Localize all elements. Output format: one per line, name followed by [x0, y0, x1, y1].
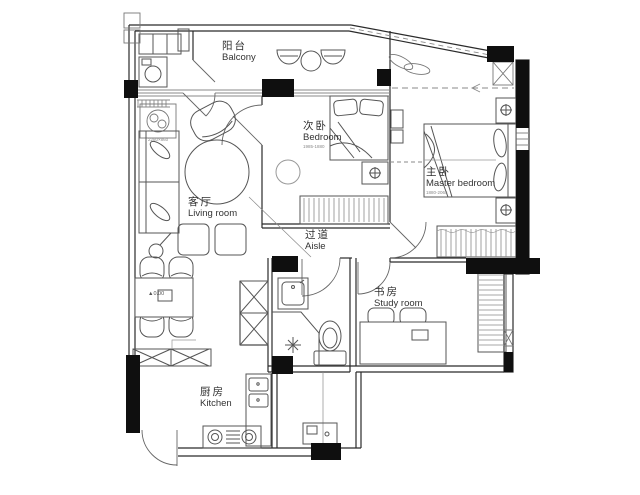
room-label-living-room: 客厅 Living room — [188, 196, 237, 220]
room-name-en: Master bedroom — [426, 178, 495, 189]
column — [272, 356, 293, 374]
master-wardrobe — [437, 226, 516, 257]
column — [272, 256, 298, 272]
room-label-study-room: 书房 Study room — [374, 286, 423, 310]
bedroom-wardrobe — [300, 196, 388, 224]
master-nightstand — [496, 98, 516, 123]
column — [126, 355, 140, 433]
bedroom-rug — [276, 160, 300, 184]
room-name-en: Kitchen — [200, 398, 232, 409]
column — [516, 150, 529, 261]
windows — [135, 28, 529, 443]
room-name-en: Balcony — [222, 52, 256, 63]
column — [487, 46, 514, 62]
bathroom-sink — [278, 278, 308, 309]
column — [124, 80, 138, 98]
shoe-cabinet — [303, 423, 337, 444]
entry-door — [142, 430, 177, 466]
balcony-chair — [277, 50, 301, 64]
column — [504, 352, 513, 372]
tall-cabinet — [240, 281, 268, 345]
room-label-kitchen: 厨房 Kitchen — [200, 386, 232, 410]
room-name-en: Living room — [188, 208, 237, 219]
room-name-en: Aisle — [305, 241, 330, 252]
column — [262, 79, 294, 97]
round-rug — [185, 140, 249, 204]
room-dimension: 1985-1880 — [303, 144, 342, 149]
study-wardrobe — [478, 266, 506, 352]
room-dimension: 1880-2065 — [426, 190, 495, 195]
room-name-zh: 主卧 — [426, 166, 495, 178]
room-label-bedroom: 次卧 Bedroom 1985-1880 — [303, 120, 342, 149]
sideboard — [133, 340, 211, 366]
master-bedroom-door — [390, 222, 426, 258]
room-name-en: Study room — [374, 298, 423, 309]
room-name-zh: 次卧 — [303, 120, 342, 132]
living-room-furniture — [139, 97, 249, 258]
room-name-zh: 厨房 — [200, 386, 232, 398]
room-name-zh: 阳台 — [222, 40, 256, 52]
room-name-zh: 书房 — [374, 286, 423, 298]
master-nightstand — [496, 198, 516, 223]
living-room-plant — [140, 104, 176, 138]
shaft-box — [504, 330, 513, 346]
stove — [203, 426, 261, 448]
stool — [178, 224, 209, 255]
floor-level-marker: ▲0.00 — [148, 291, 164, 297]
room-name-zh: 客厅 — [188, 196, 237, 208]
balcony-chair — [321, 50, 345, 64]
room-label-master-bedroom: 主卧 Master bedroom 1880-2065 — [426, 166, 495, 195]
room-name-zh: 过道 — [305, 229, 330, 241]
room-label-balcony: 阳台 Balcony — [222, 40, 256, 64]
bedroom-nightstand — [362, 162, 388, 184]
column — [311, 443, 341, 460]
bay-window-plant — [387, 51, 430, 76]
room-label-aisle: 过道 Aisle — [305, 229, 330, 253]
room-name-en: Bedroom — [303, 132, 342, 143]
column — [466, 258, 540, 274]
laundry-cabinet — [139, 29, 189, 54]
dining-table — [135, 278, 193, 317]
study-furniture — [360, 266, 506, 364]
dining-furniture — [133, 257, 211, 366]
bedroom-furniture — [276, 96, 388, 224]
bedroom-door — [222, 105, 262, 145]
balcony-table — [301, 51, 321, 71]
stool — [215, 224, 246, 255]
floor-lamp — [149, 233, 171, 258]
sofa — [139, 131, 179, 233]
shaft-box — [493, 62, 513, 85]
kitchen-sink — [246, 374, 271, 446]
ac-unit — [124, 13, 140, 43]
bathroom-fixtures — [272, 278, 346, 366]
sofa-dimension-note: 2280×860 — [148, 137, 168, 142]
column — [377, 69, 391, 86]
master-dresser — [391, 110, 403, 143]
laundry-door — [193, 60, 215, 82]
column — [516, 60, 529, 128]
study-desk — [360, 322, 446, 364]
washing-machine — [139, 57, 167, 87]
floor-plan: 阳台 Balcony 次卧 Bedroom 1985-1880 主卧 Maste… — [0, 0, 640, 495]
